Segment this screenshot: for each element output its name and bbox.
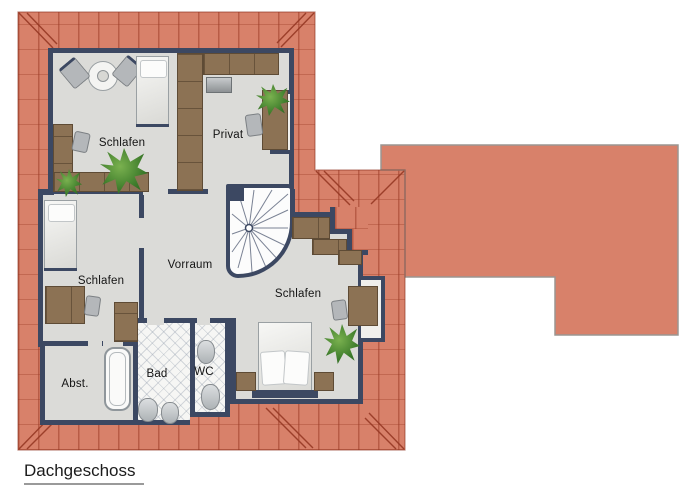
room-label-abst: Abst.: [61, 378, 88, 390]
chair: [84, 295, 102, 317]
door-opening: [147, 317, 164, 325]
single-bed: [136, 56, 169, 126]
wardrobe: [203, 53, 279, 75]
wardrobe: [292, 217, 330, 239]
room-label-schlafen2: Schlafen: [78, 275, 124, 287]
room-label-bad: Bad: [146, 368, 167, 380]
room-label-privat: Privat: [213, 129, 244, 141]
wardrobe: [338, 250, 362, 265]
room-label-schlafen3: Schlafen: [275, 288, 321, 300]
toilet: [161, 402, 179, 424]
room-label-schlafen1: Schlafen: [99, 137, 145, 149]
room-label-vorraum: Vorraum: [168, 259, 213, 271]
wall: [38, 189, 54, 195]
nightstand: [314, 372, 334, 391]
bed-footboard: [252, 390, 318, 398]
door-opening: [197, 317, 210, 325]
wardrobe: [114, 302, 138, 342]
room-label-wc: WC: [194, 366, 214, 378]
bathtub: [104, 347, 131, 411]
bidet: [138, 398, 158, 422]
door-opening: [208, 189, 228, 195]
teapot-icon: [97, 70, 109, 82]
desk: [348, 286, 378, 326]
desk: [45, 286, 85, 324]
nightstand: [236, 372, 256, 391]
wardrobe: [177, 53, 203, 191]
door-opening: [88, 340, 102, 347]
door-opening: [139, 218, 145, 248]
floor-plan: Schlafen Privat Schlafen Vorraum Schlafe…: [0, 0, 700, 500]
floor-title: Dachgeschoss: [24, 461, 144, 481]
right-wing-roof: [381, 145, 678, 335]
printer-icon: [206, 77, 232, 93]
toilet: [201, 384, 220, 410]
stair-entry-post: [230, 188, 244, 201]
sink: [197, 340, 215, 364]
double-bed: [258, 322, 312, 392]
chair: [245, 113, 264, 137]
wall: [230, 318, 236, 404]
single-bed: [44, 200, 77, 270]
chair: [331, 299, 349, 321]
floor-title-text: Dachgeschoss: [24, 461, 144, 485]
